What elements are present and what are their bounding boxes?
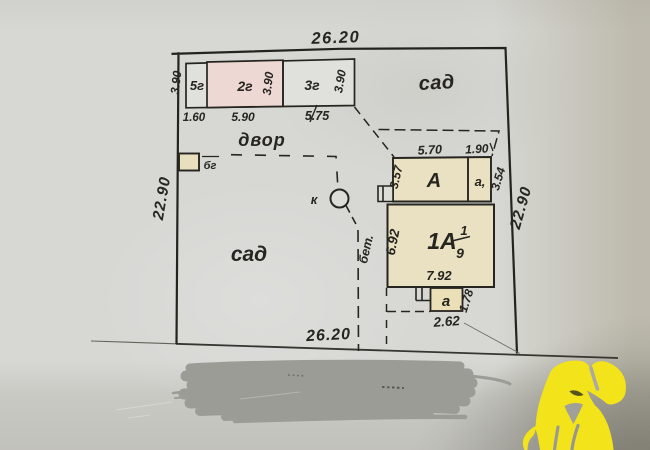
svg-text:5.70: 5.70 xyxy=(417,142,442,157)
svg-text:5.90: 5.90 xyxy=(231,110,255,124)
svg-text:1.90: 1.90 xyxy=(465,141,489,156)
svg-text:2.62: 2.62 xyxy=(432,313,461,330)
svg-text:двор: двор xyxy=(238,130,286,150)
svg-text:26.20: 26.20 xyxy=(310,28,360,48)
svg-text:1: 1 xyxy=(460,223,467,238)
svg-text:5.75: 5.75 xyxy=(305,109,330,123)
svg-text:5г: 5г xyxy=(190,78,204,93)
svg-text:а,: а, xyxy=(475,174,486,189)
svg-text:к: к xyxy=(311,192,319,207)
svg-text:7.92: 7.92 xyxy=(426,268,452,283)
svg-text:бг: бг xyxy=(204,160,217,172)
svg-text:3.90: 3.90 xyxy=(260,71,277,96)
svg-text:бет.: бет. xyxy=(356,233,376,265)
svg-text:26.20: 26.20 xyxy=(305,326,352,345)
svg-text:а: а xyxy=(442,293,450,310)
svg-text:2г: 2г xyxy=(236,78,253,94)
svg-text:сад: сад xyxy=(418,71,455,95)
svg-text:сад: сад xyxy=(231,243,267,266)
svg-text:22.90: 22.90 xyxy=(150,175,175,222)
svg-text:9: 9 xyxy=(456,245,464,261)
svg-text:3.90: 3.90 xyxy=(168,70,185,95)
svg-text:1.60: 1.60 xyxy=(183,112,206,124)
svg-text:3г: 3г xyxy=(304,77,320,93)
svg-text:А: А xyxy=(426,170,441,192)
